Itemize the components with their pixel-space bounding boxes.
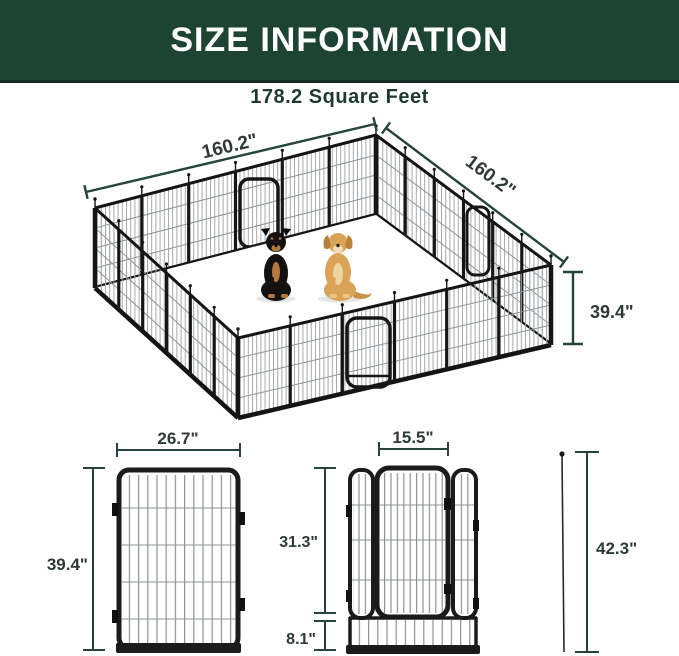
size-illustration: 160.2" 160.2" 39.4" 26.7" 39.4" [0, 0, 679, 656]
dimension-door-bottom-height: 8.1" [286, 621, 336, 650]
ground-stake-drawing [559, 451, 564, 652]
dimension-stake-height: 42.3" [575, 452, 637, 652]
panel-diagram: 26.7" 39.4" [47, 429, 245, 653]
door-panel-drawing [346, 468, 480, 654]
dimension-label: 42.3" [596, 539, 637, 558]
dimension-label: 15.5" [392, 428, 433, 447]
playpen-illustration: 160.2" 160.2" 39.4" [84, 117, 633, 418]
dimension-label: 160.2" [461, 151, 519, 202]
dimension-door-upper-height: 31.3" [279, 468, 336, 613]
dimension-label: 8.1" [286, 631, 316, 648]
dimension-label: 26.7" [157, 429, 198, 448]
dimension-door-width: 15.5" [379, 428, 448, 456]
dimension-label: 39.4" [47, 555, 88, 574]
dimension-label: 39.4" [590, 302, 634, 322]
dimension-label: 31.3" [279, 534, 318, 551]
dimension-panel-width: 26.7" [117, 429, 240, 457]
door-panel-diagram: 15.5" 31.3" 8.1" [279, 428, 637, 654]
dimension-panel-height: 39.4" [47, 468, 105, 650]
panel-drawing [112, 470, 245, 653]
dimension-pen-height: 39.4" [563, 272, 634, 344]
